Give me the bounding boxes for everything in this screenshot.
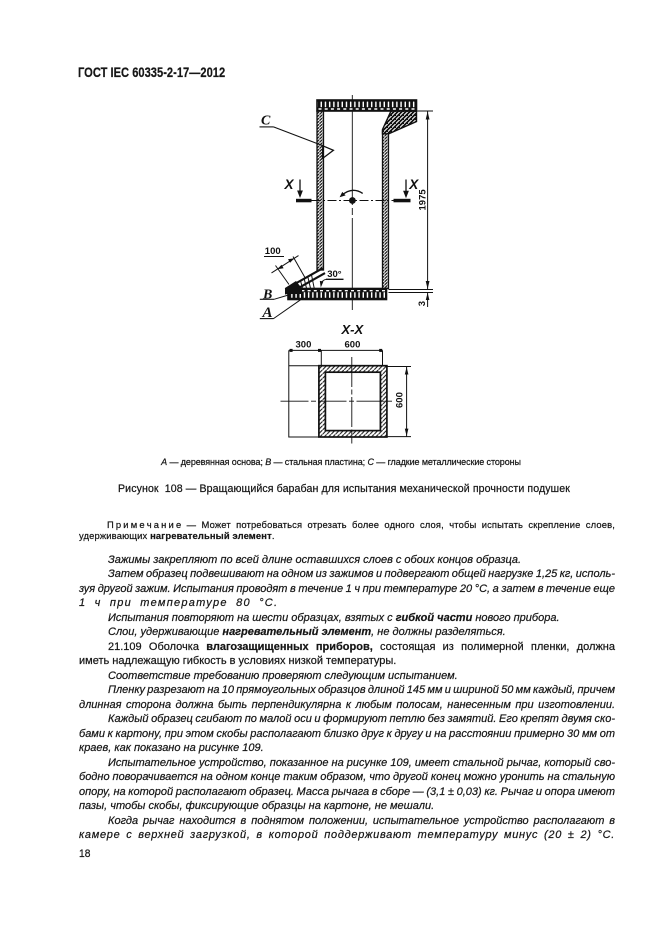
svg-text:600: 600 bbox=[345, 340, 361, 351]
svg-text:1975: 1975 bbox=[418, 189, 429, 211]
svg-text:3: 3 bbox=[417, 301, 428, 306]
svg-text:С: С bbox=[261, 114, 271, 129]
svg-text:100: 100 bbox=[265, 246, 281, 257]
svg-text:В: В bbox=[262, 287, 272, 302]
svg-text:30°: 30° bbox=[327, 269, 342, 280]
svg-text:300: 300 bbox=[296, 340, 312, 351]
svg-text:X-X: X-X bbox=[341, 322, 365, 337]
svg-text:X: X bbox=[284, 177, 295, 192]
svg-text:600: 600 bbox=[395, 392, 406, 408]
